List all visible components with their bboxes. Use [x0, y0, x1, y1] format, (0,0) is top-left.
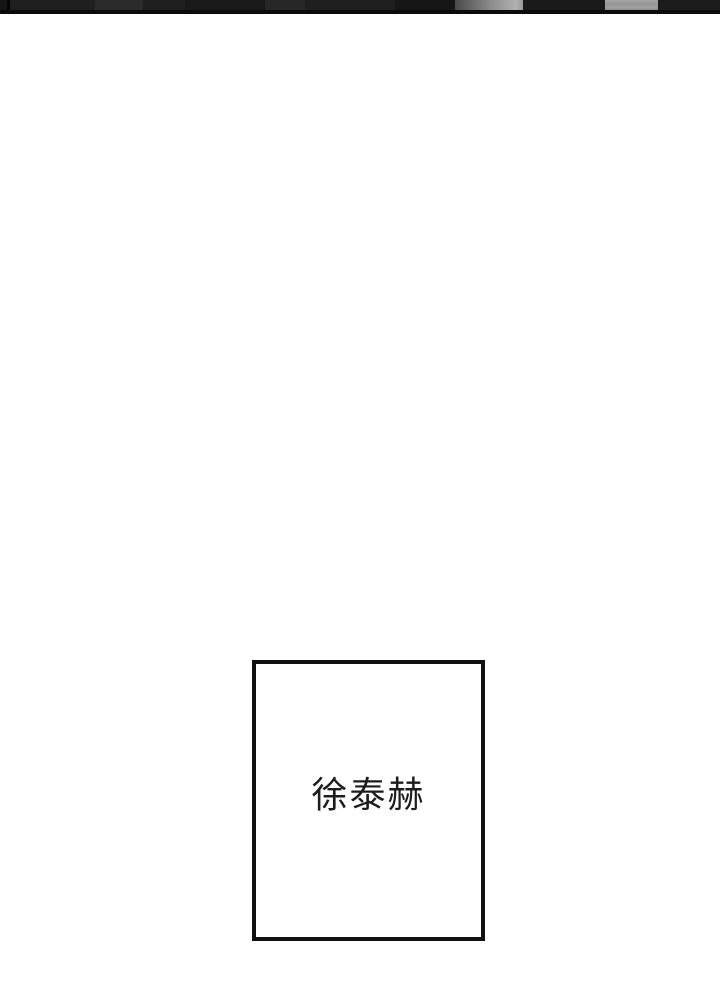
- panel-border-line: [0, 10, 720, 14]
- name-card-panel: 徐泰赫: [252, 660, 485, 941]
- panel-edge-segment: [7, 0, 10, 10]
- panel-edge-segment: [95, 0, 143, 10]
- character-name-text: 徐泰赫: [311, 766, 425, 818]
- panel-edge-highlight: [605, 0, 658, 10]
- panel-edge-segment: [265, 0, 305, 10]
- panel-edge-highlight: [455, 0, 523, 10]
- panel-edge-segment: [523, 0, 605, 10]
- panel-edge-segment: [658, 0, 720, 10]
- panel-edge-segment: [395, 0, 455, 10]
- panel-edge-segment: [185, 0, 265, 10]
- previous-panel-bottom-edge: [0, 0, 720, 14]
